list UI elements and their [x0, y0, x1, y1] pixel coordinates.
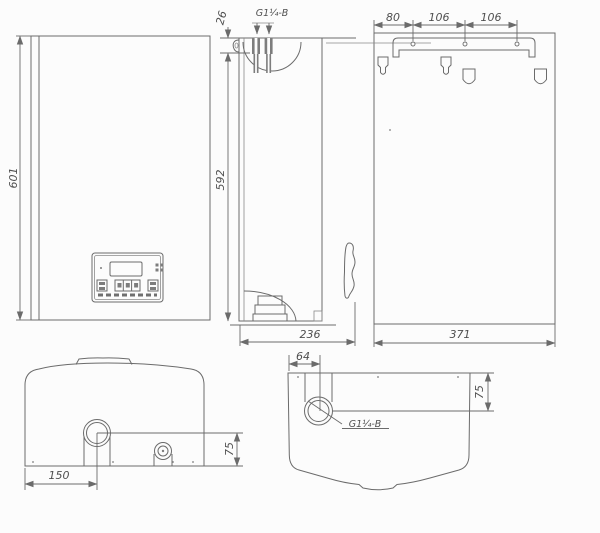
dim-106-right-label: 106 [481, 11, 502, 24]
rear-view: 80 106 106 371 [326, 11, 555, 347]
rear-screw-dot [389, 129, 391, 131]
pump-detail [244, 291, 296, 321]
small-connection [154, 443, 172, 467]
dim-26: 26 [213, 9, 250, 53]
dim-601-label: 601 [7, 168, 20, 189]
front-view: 601 [7, 36, 210, 320]
keyhole-slot-2 [441, 57, 451, 74]
technical-drawing-svg: 601 G1¼-B [0, 0, 600, 533]
control-panel [92, 253, 164, 302]
dim-150-label: 150 [49, 469, 70, 482]
dim-75-top-label: 75 [473, 385, 486, 399]
side-outline [239, 38, 322, 321]
dim-26-label: 26 [213, 9, 229, 26]
dim-236-label: 236 [300, 328, 321, 341]
wall-bracket-profile [344, 243, 355, 298]
dim-236: 236 [240, 302, 355, 346]
arch-slot-1 [463, 69, 475, 84]
bottom-outline [25, 363, 204, 466]
dim-bracket-spacing: 80 106 106 [374, 11, 517, 41]
dim-75-bottom-label: 75 [223, 442, 236, 456]
connection-callout-side: G1¼-B [252, 8, 288, 34]
bracket-hole-right [515, 42, 519, 46]
front-outline [31, 36, 210, 320]
power-led [100, 267, 102, 269]
top-screw-dots [297, 376, 459, 378]
hanger-ear-slot [235, 43, 238, 48]
left-rocker-button [97, 280, 107, 291]
connection-label-top: G1¼-B [349, 419, 382, 430]
bottom-screw-dots [32, 461, 194, 463]
top-outline [288, 373, 470, 490]
relief-connection [305, 373, 333, 425]
dim-601: 601 [7, 36, 31, 320]
side-view: G1¼-B 26 592 [213, 8, 356, 346]
dim-80-label: 80 [386, 11, 400, 24]
center-button-group [115, 280, 140, 291]
bracket-hole-mid [463, 42, 467, 46]
dim-592: 592 [214, 53, 228, 321]
pipe-stub-right [265, 38, 273, 73]
boiler-dimension-drawing: 601 G1¼-B [0, 0, 600, 533]
connection-label-side: G1¼-B [256, 8, 289, 19]
top-view: G1¼-B 64 75 [288, 350, 494, 490]
bottom-view: 150 75 [25, 358, 243, 490]
dim-64-label: 64 [296, 350, 310, 363]
dim-592-label: 592 [214, 170, 227, 191]
display-screen [110, 262, 142, 276]
dim-371: 371 [374, 324, 555, 347]
bracket-hole-left [411, 42, 415, 46]
dim-106-left-label: 106 [429, 11, 450, 24]
indicator-leds [156, 264, 164, 272]
mounting-bracket-bar [393, 38, 535, 57]
rear-foot [314, 311, 322, 321]
rear-outline [374, 33, 555, 324]
dim-371-label: 371 [450, 328, 471, 341]
right-rocker-button [148, 280, 158, 291]
keyhole-slot-1 [378, 57, 388, 74]
arch-slot-2 [535, 69, 547, 84]
dim-75-bottom: 75 [97, 433, 243, 466]
